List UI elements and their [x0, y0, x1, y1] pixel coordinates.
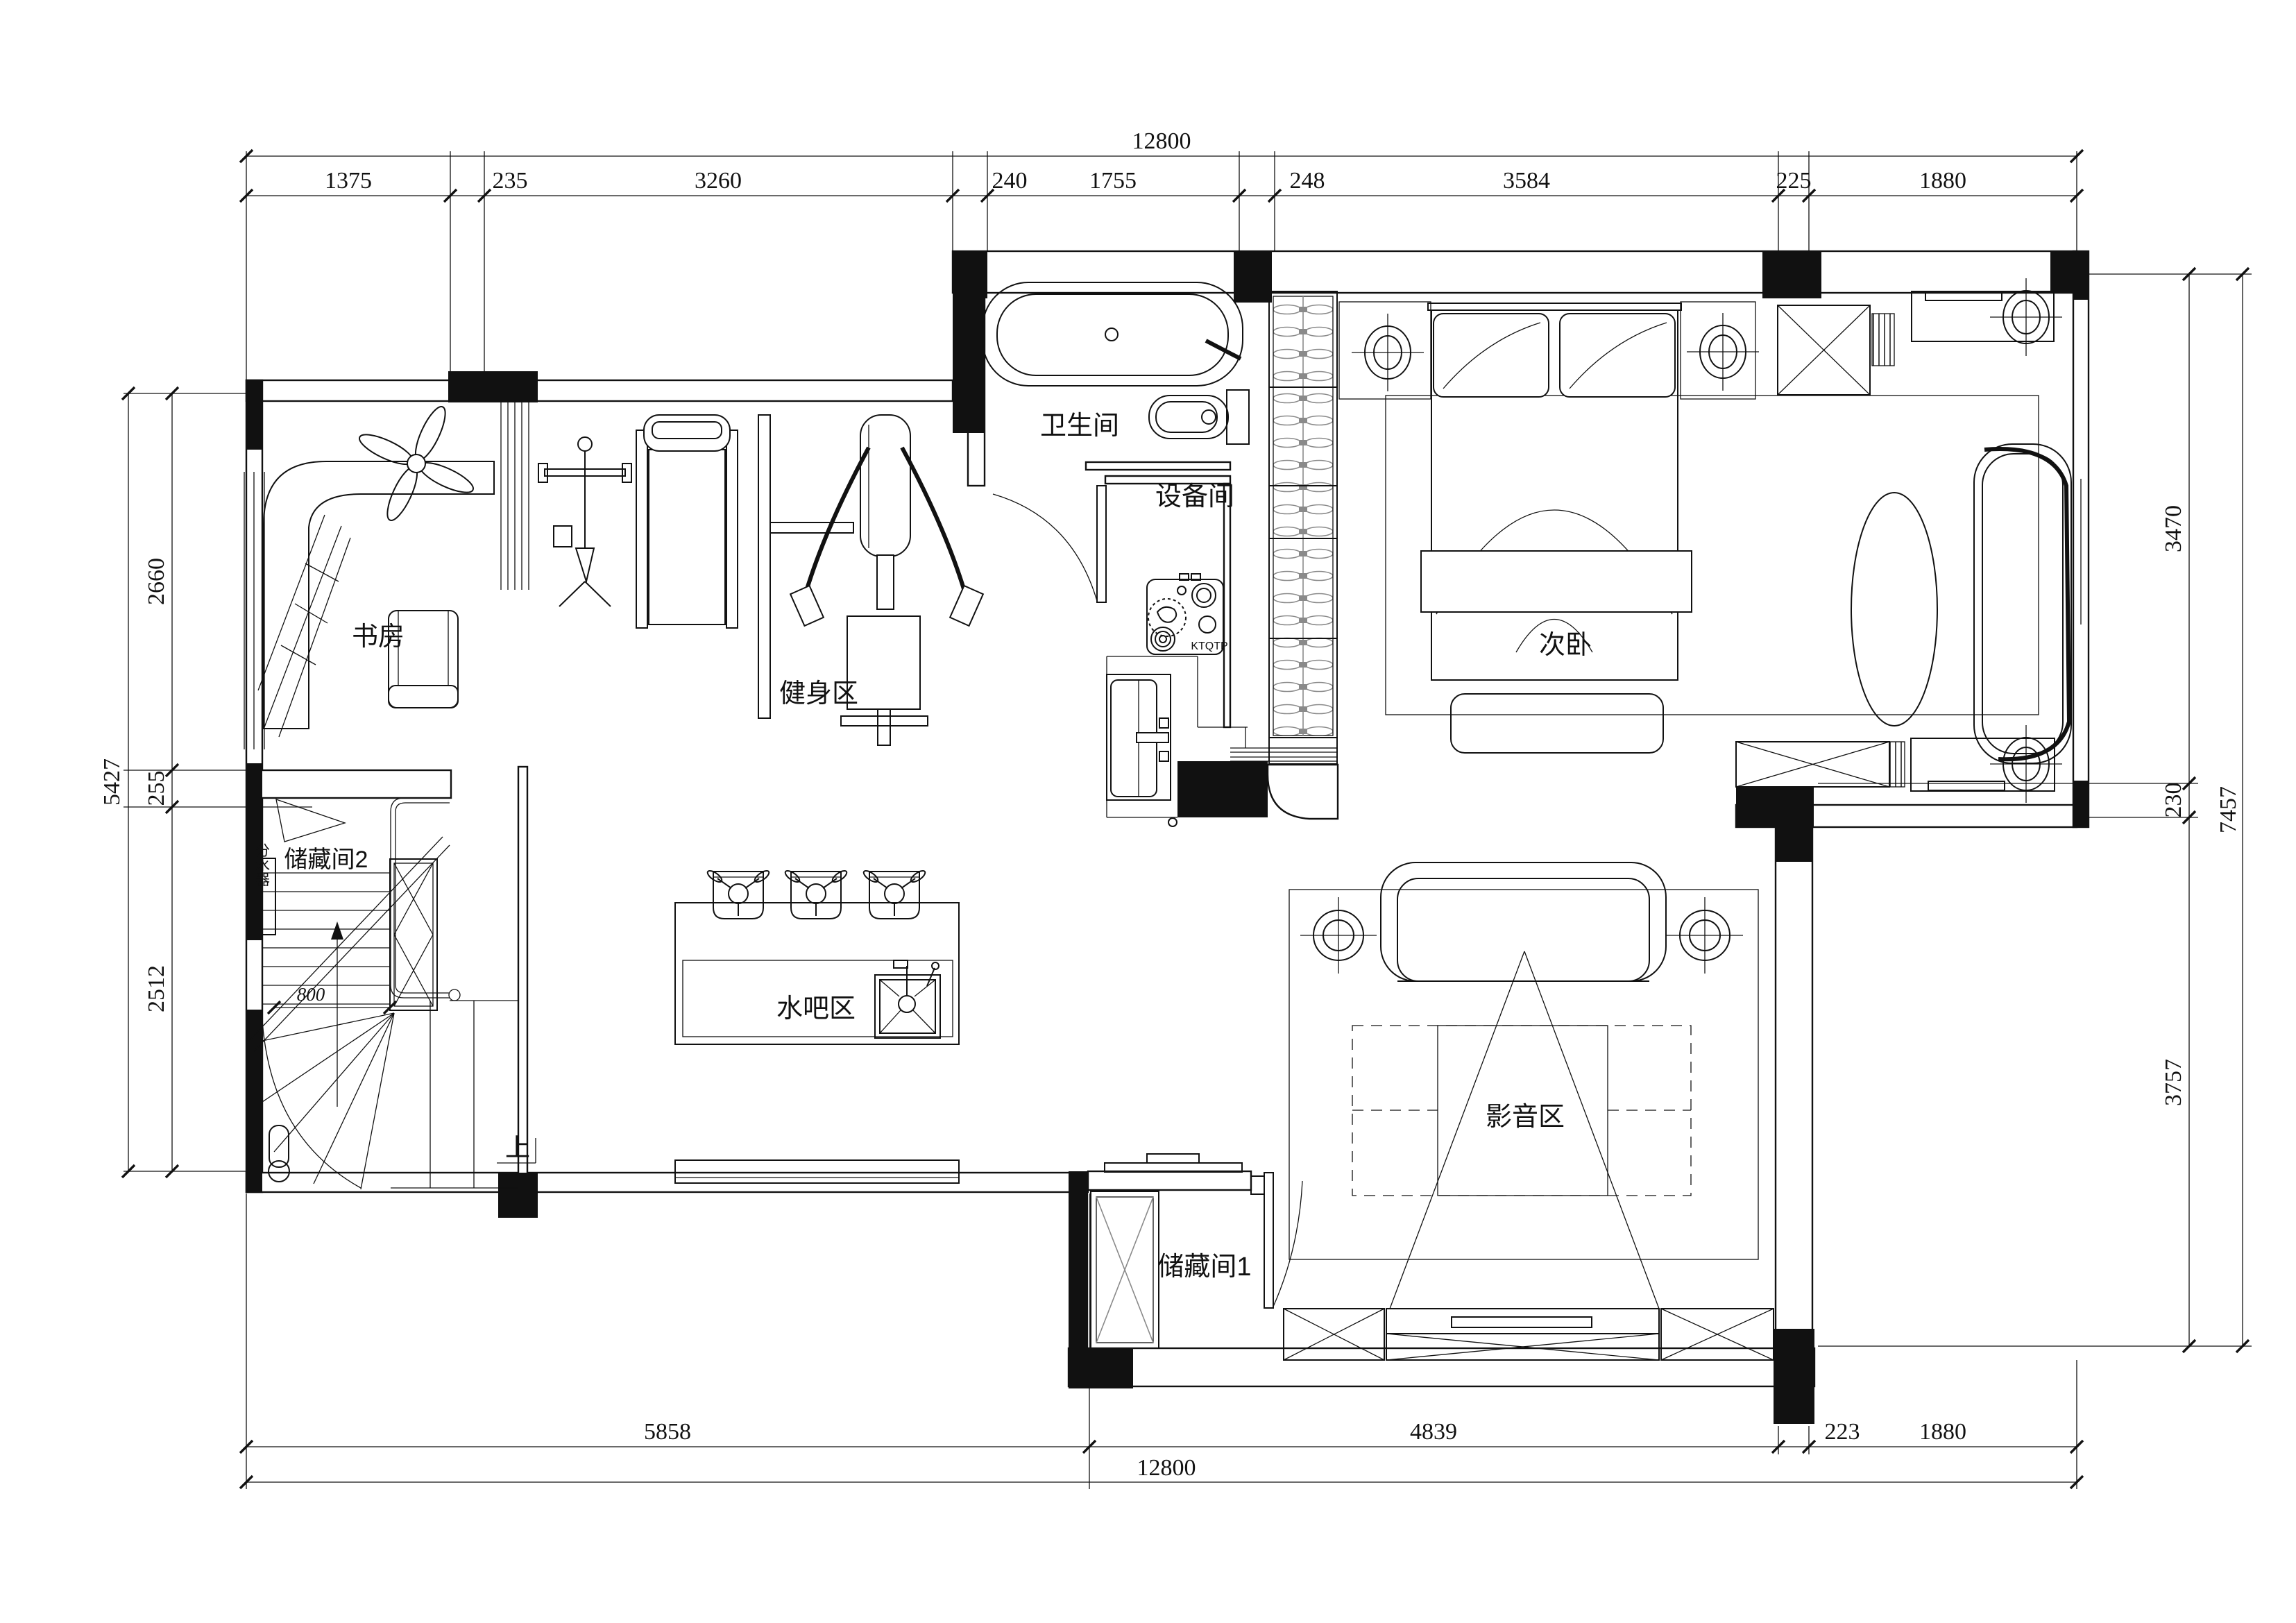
dim-left-seg-2: 2512 [144, 965, 169, 1012]
water-manifold-unit: KTQTP [1147, 574, 1228, 654]
dim-right-seg-2: 3757 [2161, 1059, 2186, 1106]
projection-screen [1386, 1309, 1659, 1334]
tv-cabinet-bottom [1736, 742, 1905, 787]
speaker-left [1300, 897, 1377, 974]
gym: 健身区 [538, 415, 983, 745]
wardrobe-top [1778, 305, 1894, 395]
secondary-bedroom: 次卧 [1339, 278, 2071, 803]
dim-top-seg-0: 1375 [325, 168, 372, 194]
bed-end-bench [1451, 694, 1663, 753]
stair-width-label: 800 [297, 984, 325, 1005]
dim-left-seg-0: 2660 [144, 558, 169, 605]
equipment-label: 设备间 [1155, 482, 1234, 511]
bar-stool-2 [783, 869, 848, 919]
bar-stool-1 [706, 869, 770, 919]
media-floor-border [1289, 890, 1758, 1259]
dim-top-seg-3: 240 [992, 168, 1028, 194]
cable-machine [538, 437, 631, 606]
dim-left-overall: 5427 [99, 758, 125, 806]
secondary-bedroom-label: 次卧 [1539, 631, 1592, 660]
dim-top-seg-8: 1880 [1919, 168, 1966, 194]
dim-bottom-seg-0: 5858 [644, 1419, 691, 1445]
up-label: 上 [505, 1133, 530, 1162]
glass-partition [501, 402, 529, 590]
stair-width-dim: 800 [268, 984, 396, 1014]
storage1-wardrobe [1091, 1191, 1159, 1348]
chaise-chair [1974, 444, 2071, 763]
dim-right-seg-1: 230 [2161, 783, 2186, 818]
transom-band [1230, 748, 1338, 761]
dim-top-seg-2: 3260 [695, 168, 742, 194]
curved-desk [264, 461, 494, 729]
bathroom-label: 卫生间 [1040, 411, 1119, 441]
utility-sink [1107, 674, 1177, 826]
media-zone-label: 影音区 [1486, 1103, 1565, 1132]
water-bar: 水吧区 [675, 869, 959, 1044]
dim-top-seg-4: 1755 [1089, 168, 1137, 194]
dim-bottom-overall: 12800 [1137, 1455, 1196, 1481]
bed [1421, 303, 1692, 680]
bathtub [983, 282, 1243, 386]
dim-bottom-seg-2: 223 [1825, 1419, 1860, 1445]
gym-label: 健身区 [779, 679, 858, 708]
nightstand-right [1681, 302, 1759, 399]
bar-sink [875, 960, 940, 1038]
stair-treads [247, 837, 518, 1189]
media-sofa [1381, 863, 1666, 981]
storage2-wardrobe [390, 859, 437, 1010]
water-bar-label: 水吧区 [776, 994, 856, 1023]
floor-pouf [1851, 493, 1937, 726]
dim-bottom-seg-1: 4839 [1410, 1419, 1457, 1445]
dim-top-overall: 12800 [1132, 128, 1191, 154]
dim-top-seg-6: 3584 [1503, 168, 1550, 194]
bathroom-door [993, 486, 1106, 602]
storage1-door [1264, 1173, 1302, 1308]
study-label: 书房 [352, 622, 405, 652]
dim-right-overall: 7457 [2216, 786, 2241, 833]
speaker-right [1667, 897, 1743, 974]
stair-rail [391, 798, 460, 1001]
dim-bottom-seg-3: 1880 [1919, 1419, 1966, 1445]
desk-fan [356, 403, 477, 524]
storage-2-label: 储藏间2 [284, 847, 368, 873]
storage-2-stairs: 分水器 [247, 798, 536, 1189]
plant [258, 515, 350, 737]
media-zone: 影音区 [1284, 863, 1774, 1360]
stair-direction-arrow [331, 921, 343, 1107]
hall-curved-wall [1268, 765, 1338, 819]
floor-plan-page: 12800 1375 235 3260 240 1755 248 3584 22… [0, 0, 2296, 1623]
stair-up-marker: 上 [497, 1133, 536, 1163]
bathroom: 卫生间 [983, 282, 1249, 602]
dim-right-seg-0: 3470 [2161, 505, 2186, 552]
folding-door [276, 799, 345, 842]
dim-top-seg-7: 225 [1776, 168, 1812, 194]
manifold-label: 分水器 [254, 843, 271, 887]
storage-1-label: 储藏间1 [1157, 1252, 1251, 1282]
device-code-label: KTQTP [1191, 640, 1227, 652]
treadmill [636, 415, 738, 628]
dim-top-seg-5: 248 [1290, 168, 1325, 194]
walls [244, 251, 2089, 1424]
storage-1: 储藏间1 [1088, 1154, 1302, 1348]
floor-plan-canvas: 12800 1375 235 3260 240 1755 248 3584 22… [0, 0, 2296, 1623]
dim-left-seg-1: 255 [144, 771, 169, 806]
nightstand-left [1339, 302, 1431, 399]
dim-top-seg-1: 235 [493, 168, 528, 194]
study: 书房 [258, 403, 494, 737]
bar-stool-3 [862, 869, 926, 919]
toilet [1149, 390, 1249, 444]
closet [1269, 291, 1337, 764]
